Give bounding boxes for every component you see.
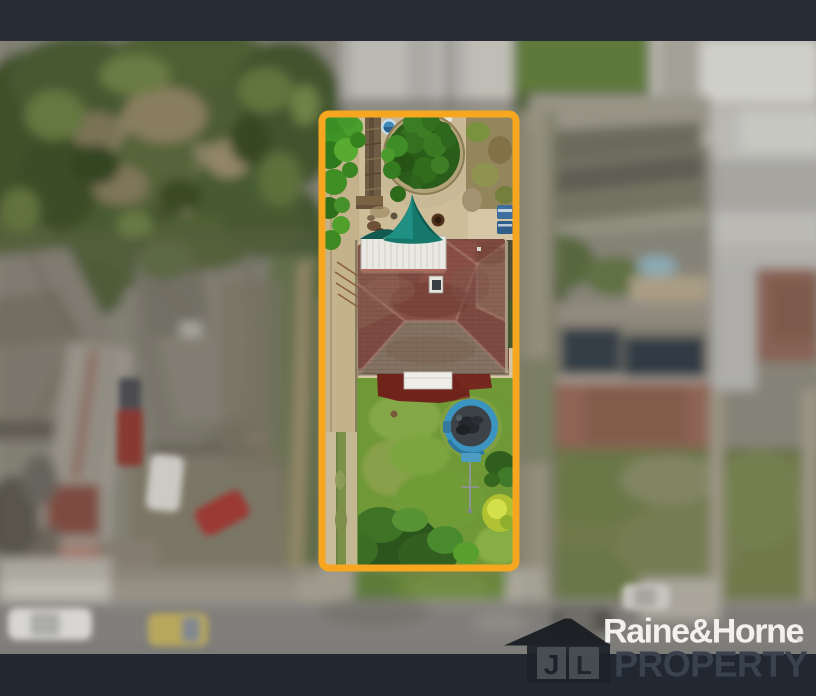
svg-text:J: J <box>544 649 560 680</box>
svg-text:PROPERTY: PROPERTY <box>614 644 808 685</box>
svg-text:L: L <box>576 650 592 680</box>
